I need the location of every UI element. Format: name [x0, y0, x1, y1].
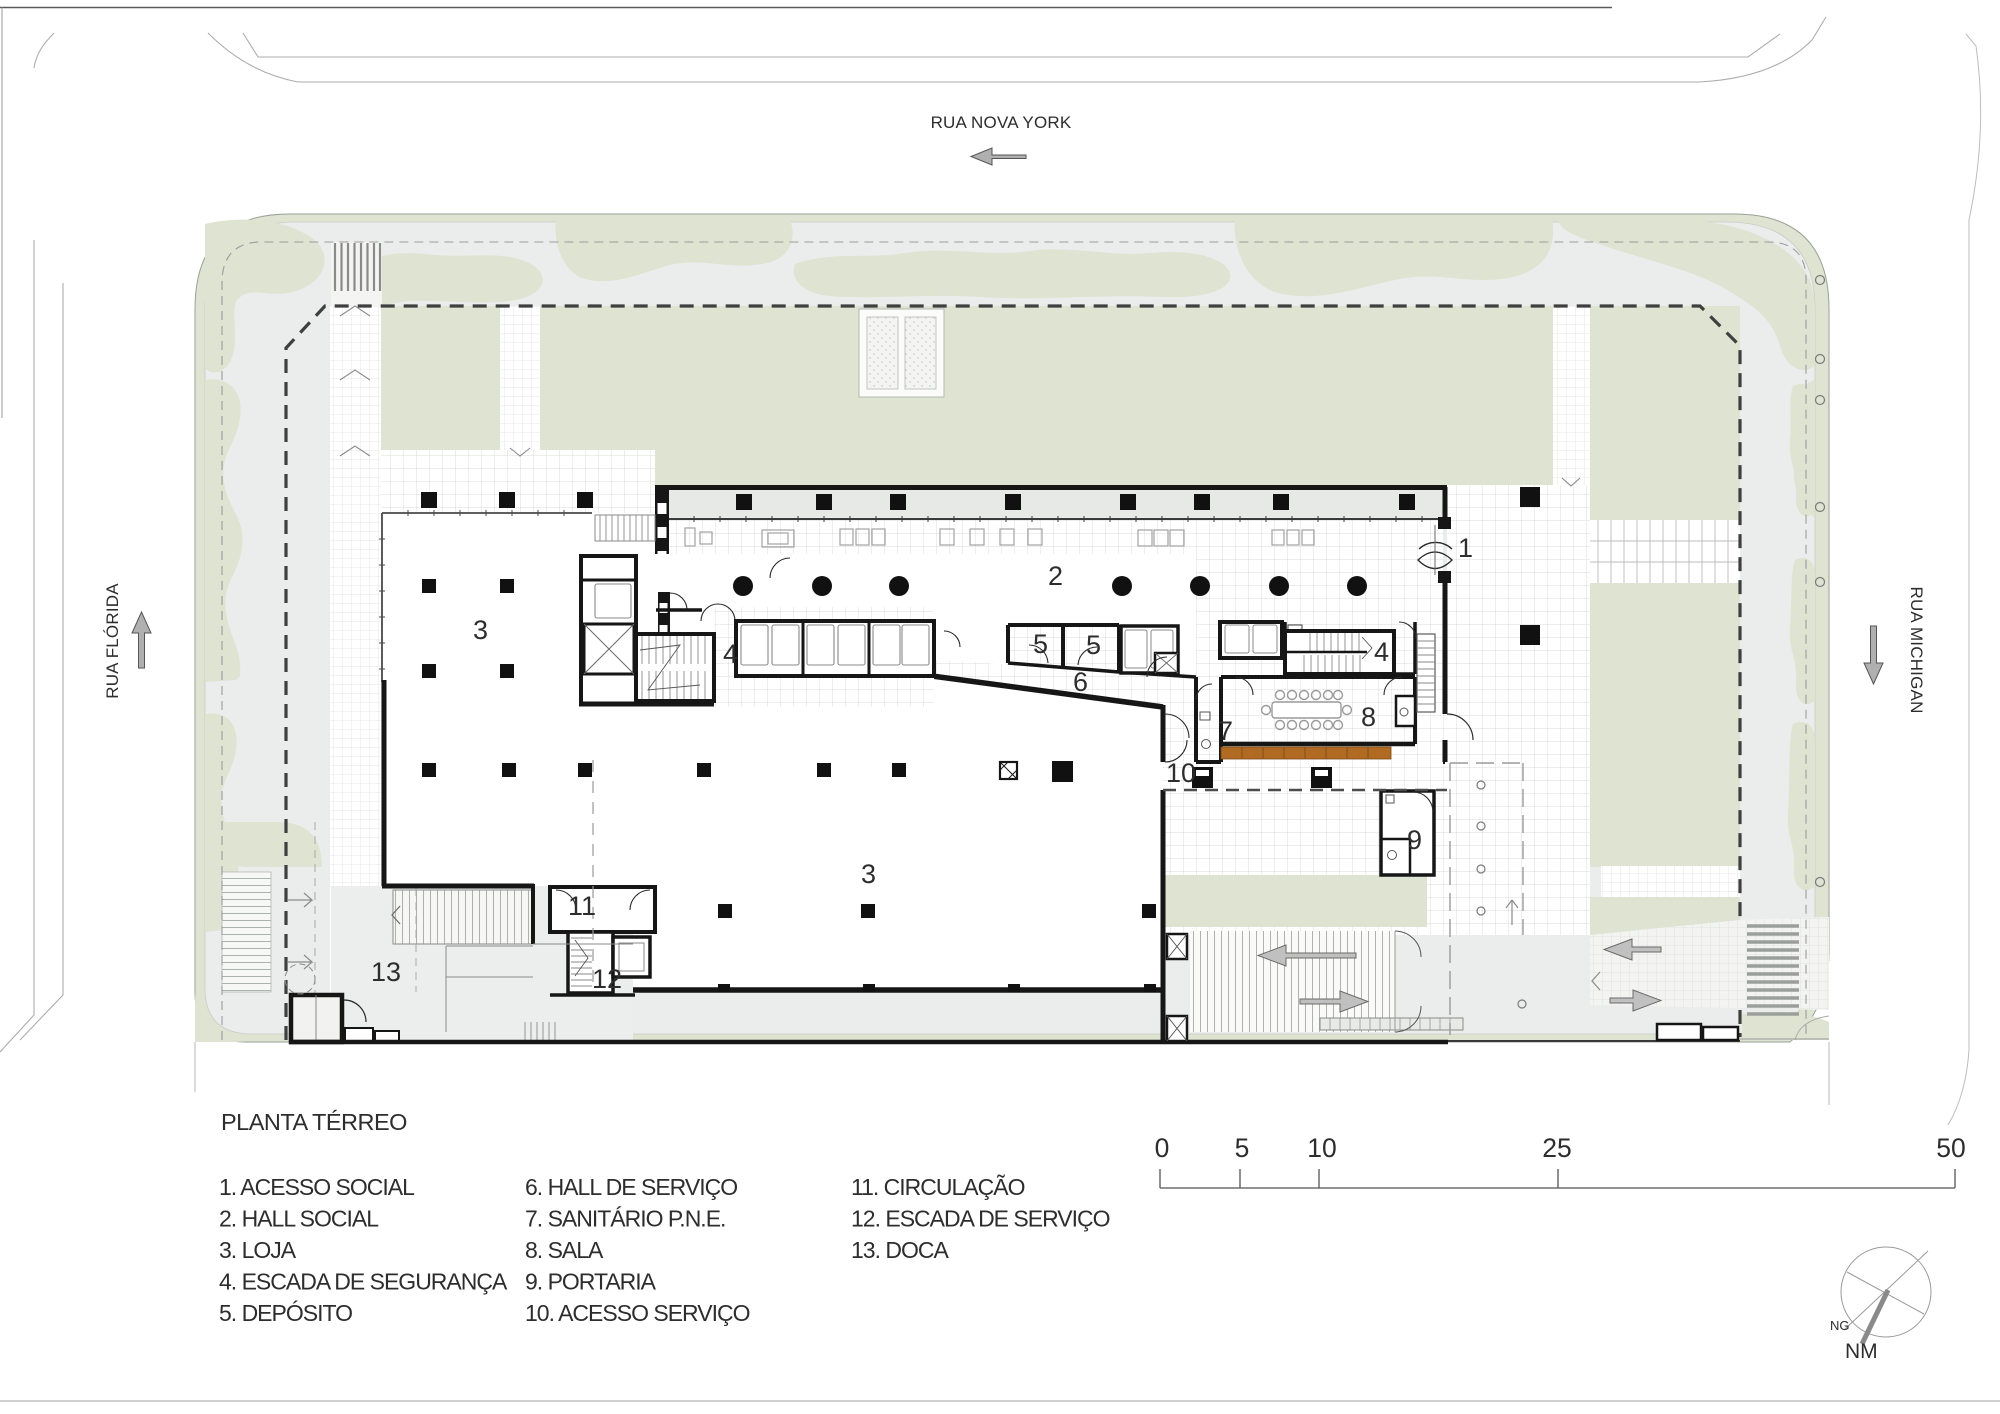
svg-text:10: 10 [1307, 1133, 1336, 1163]
svg-text:1. ACESSO SOCIAL: 1. ACESSO SOCIAL [219, 1174, 415, 1200]
svg-text:PLANTA TÉRREO: PLANTA TÉRREO [221, 1109, 407, 1135]
svg-text:12. ESCADA DE SERVIÇO: 12. ESCADA DE SERVIÇO [851, 1206, 1110, 1232]
svg-text:13: 13 [371, 957, 401, 987]
svg-text:NG: NG [1830, 1318, 1850, 1333]
svg-text:RUA MICHIGAN: RUA MICHIGAN [1907, 586, 1926, 713]
svg-text:3: 3 [473, 615, 488, 645]
svg-text:50: 50 [1936, 1133, 1965, 1163]
svg-text:3: 3 [861, 859, 876, 889]
svg-text:6: 6 [1073, 667, 1088, 697]
svg-text:RUA FLÓRIDA: RUA FLÓRIDA [103, 583, 122, 699]
svg-text:5: 5 [1235, 1133, 1250, 1163]
svg-text:2: 2 [1048, 561, 1063, 591]
svg-text:5. DEPÓSITO: 5. DEPÓSITO [219, 1300, 352, 1326]
svg-text:25: 25 [1542, 1133, 1571, 1163]
svg-text:11. CIRCULAÇÃO: 11. CIRCULAÇÃO [851, 1174, 1025, 1200]
svg-text:3. LOJA: 3. LOJA [219, 1237, 297, 1263]
svg-text:12: 12 [592, 964, 622, 994]
svg-text:6. HALL DE SERVIÇO: 6. HALL DE SERVIÇO [525, 1174, 737, 1200]
svg-text:7. SANITÁRIO P.N.E.: 7. SANITÁRIO P.N.E. [525, 1206, 725, 1232]
svg-text:8. SALA: 8. SALA [525, 1237, 604, 1263]
svg-text:5: 5 [1086, 630, 1101, 660]
svg-text:2. HALL SOCIAL: 2. HALL SOCIAL [219, 1206, 379, 1232]
svg-text:13. DOCA: 13. DOCA [851, 1237, 949, 1263]
svg-text:RUA NOVA YORK: RUA NOVA YORK [931, 113, 1072, 132]
svg-text:4. ESCADA DE SEGURANÇA: 4. ESCADA DE SEGURANÇA [219, 1269, 508, 1295]
svg-text:10. ACESSO SERVIÇO: 10. ACESSO SERVIÇO [525, 1300, 750, 1326]
svg-text:1: 1 [1458, 533, 1473, 563]
svg-text:10: 10 [1166, 758, 1196, 788]
svg-text:NM: NM [1845, 1340, 1878, 1363]
svg-text:0: 0 [1155, 1133, 1170, 1163]
svg-text:11: 11 [568, 891, 596, 921]
svg-text:4: 4 [723, 639, 738, 669]
svg-text:7: 7 [1218, 716, 1233, 746]
svg-text:8: 8 [1361, 702, 1376, 732]
svg-text:9. PORTARIA: 9. PORTARIA [525, 1269, 657, 1295]
svg-text:4: 4 [1374, 637, 1389, 667]
svg-text:9: 9 [1407, 825, 1422, 855]
svg-text:5: 5 [1033, 629, 1048, 659]
